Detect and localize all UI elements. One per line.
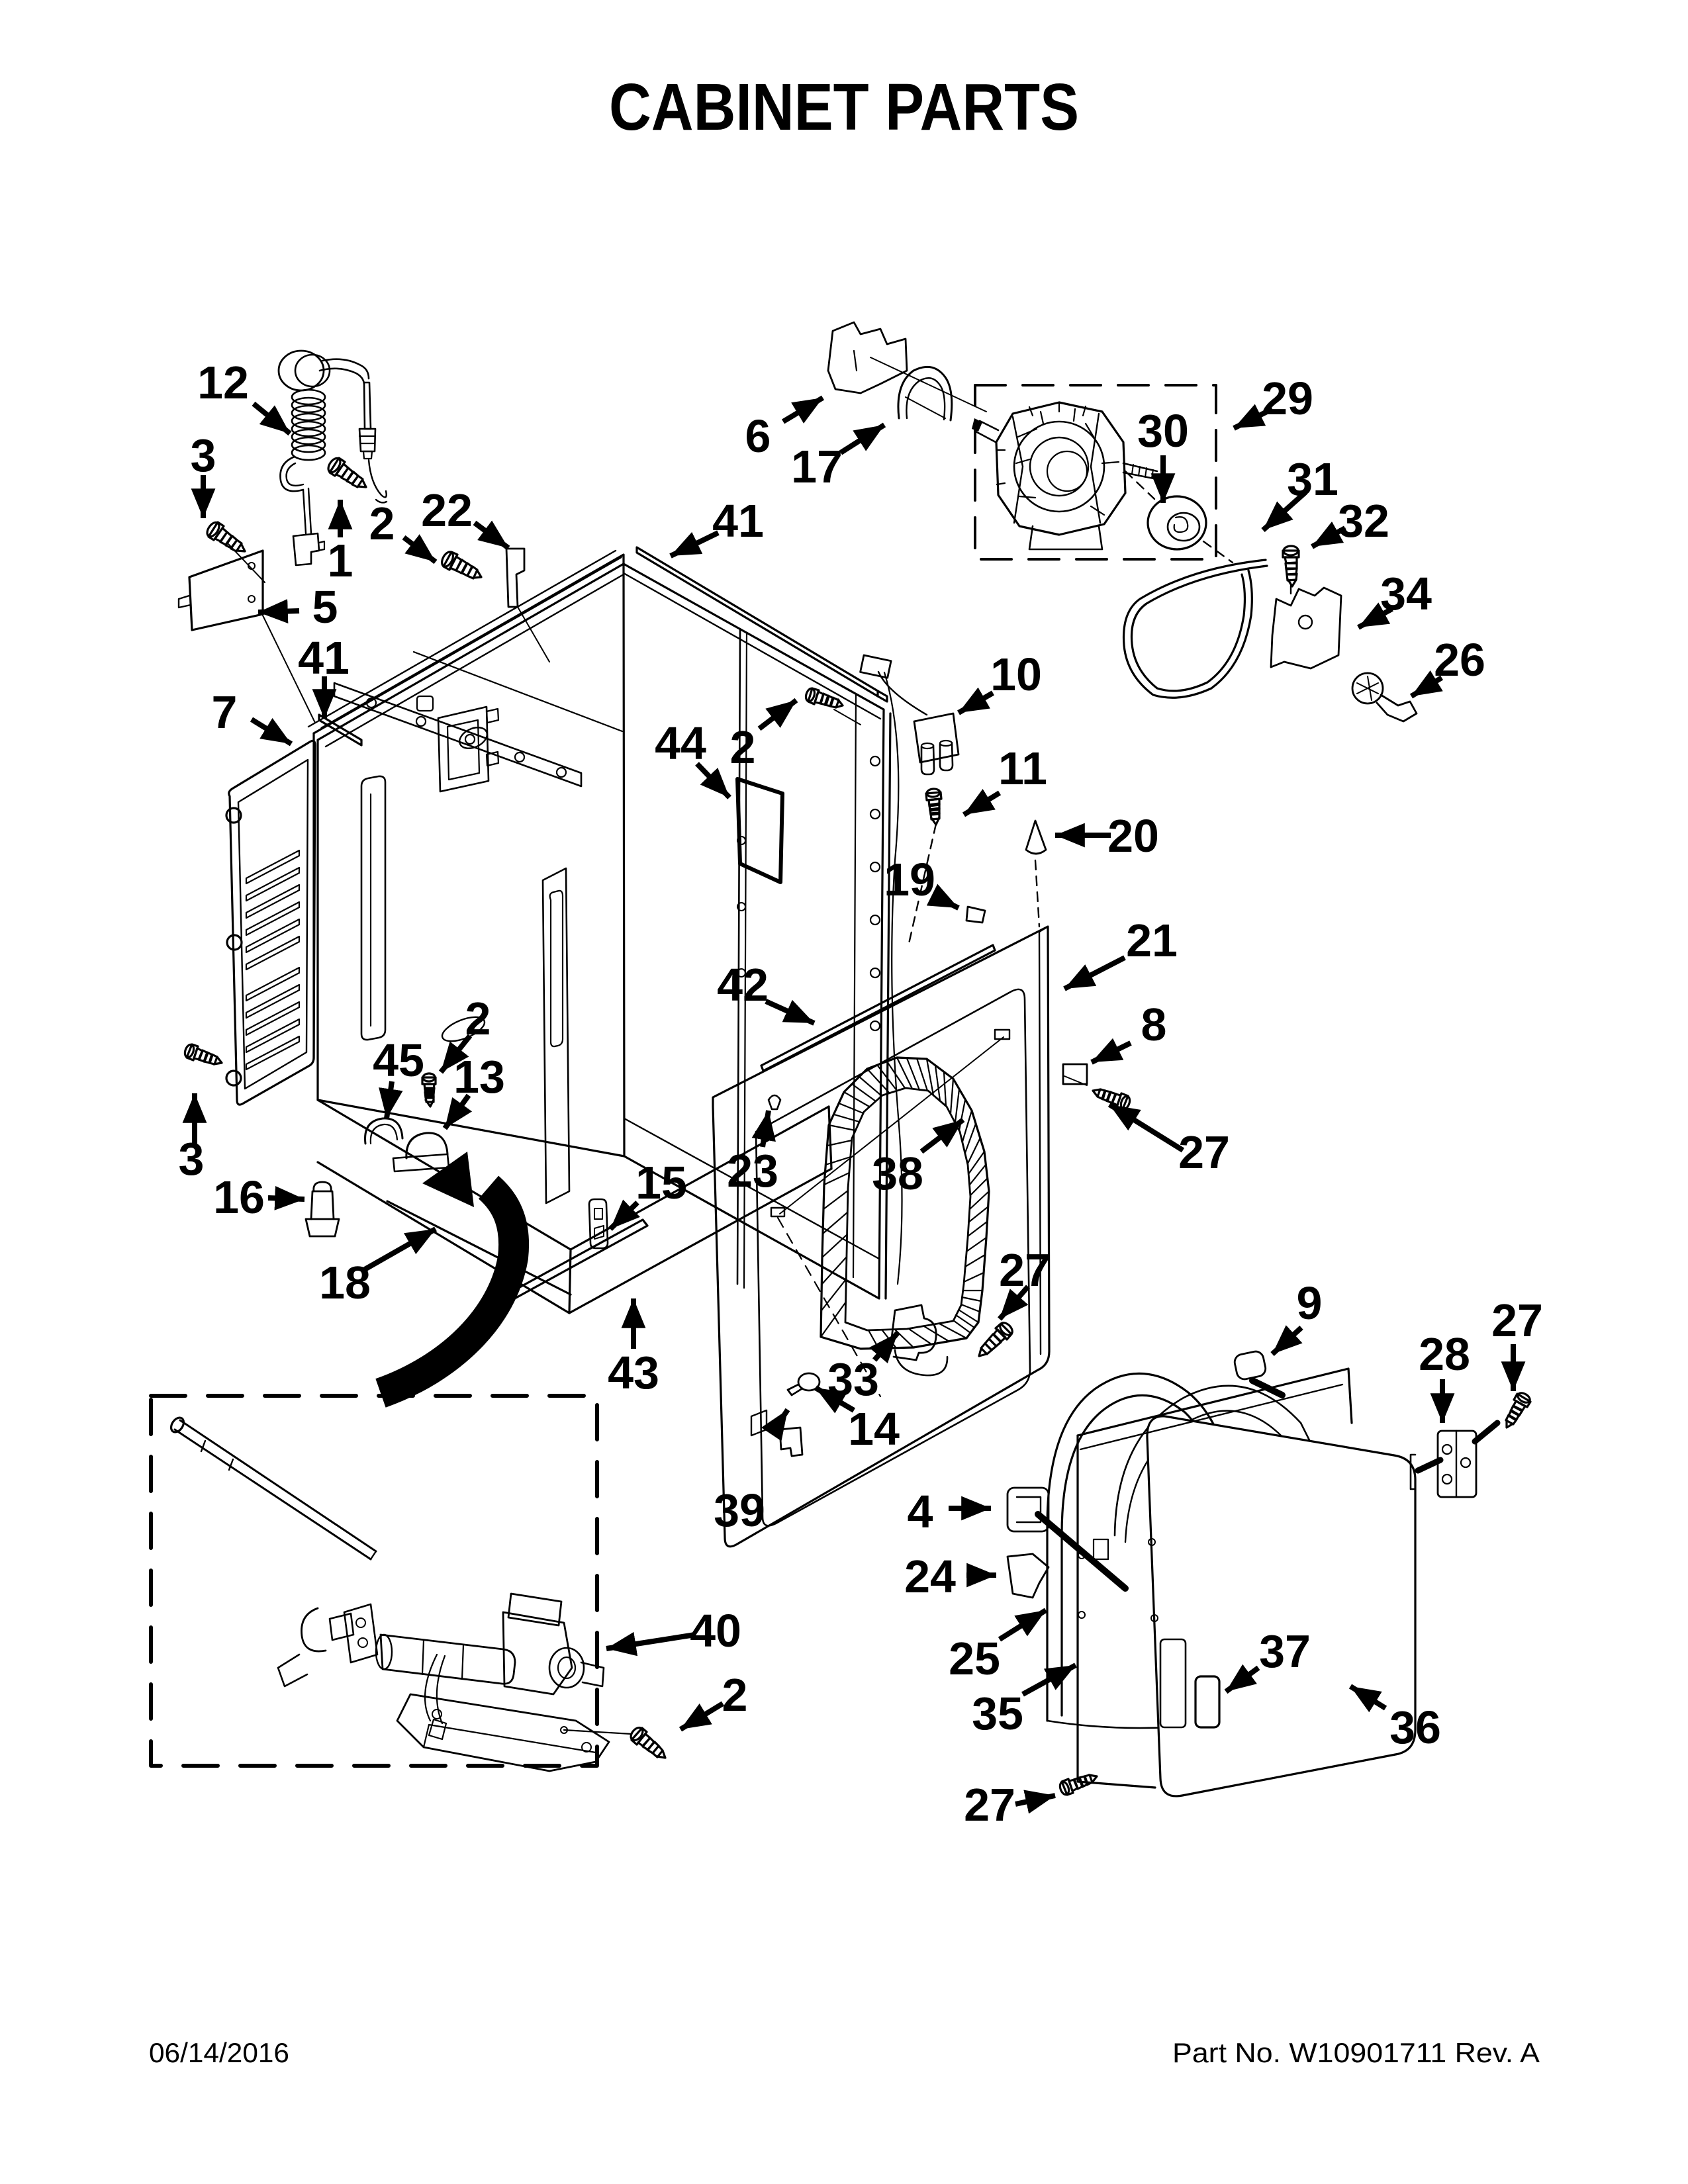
svg-text:2: 2	[722, 1669, 748, 1721]
svg-text:20: 20	[1107, 810, 1159, 862]
svg-text:3: 3	[191, 430, 216, 481]
svg-text:39: 39	[714, 1484, 765, 1536]
svg-text:3: 3	[179, 1133, 205, 1185]
svg-text:45: 45	[373, 1034, 424, 1086]
svg-text:16: 16	[213, 1171, 265, 1223]
svg-text:42: 42	[717, 959, 769, 1011]
svg-text:27: 27	[1491, 1295, 1543, 1346]
svg-text:30: 30	[1137, 405, 1189, 457]
svg-text:35: 35	[972, 1688, 1023, 1739]
svg-text:12: 12	[197, 357, 249, 408]
svg-text:28: 28	[1419, 1328, 1470, 1380]
svg-text:37: 37	[1259, 1625, 1311, 1677]
svg-text:21: 21	[1126, 915, 1178, 966]
svg-text:32: 32	[1338, 495, 1389, 547]
svg-text:22: 22	[421, 484, 473, 536]
svg-text:5: 5	[312, 581, 338, 633]
svg-text:11: 11	[998, 743, 1047, 794]
svg-text:19: 19	[884, 854, 935, 905]
svg-text:Part No. W10901711 Rev. A: Part No. W10901711 Rev. A	[1172, 2037, 1540, 2068]
svg-text:9: 9	[1297, 1277, 1323, 1329]
svg-text:13: 13	[453, 1051, 505, 1103]
svg-text:14: 14	[848, 1403, 900, 1455]
svg-text:2: 2	[730, 721, 756, 773]
svg-text:27: 27	[1178, 1126, 1230, 1178]
svg-text:25: 25	[949, 1633, 1000, 1684]
svg-text:23: 23	[727, 1145, 778, 1197]
svg-text:4: 4	[908, 1486, 933, 1537]
svg-text:1: 1	[328, 535, 353, 586]
svg-text:7: 7	[212, 686, 238, 738]
svg-text:29: 29	[1262, 373, 1313, 424]
svg-text:24: 24	[904, 1551, 956, 1602]
svg-text:6: 6	[745, 410, 771, 462]
svg-text:43: 43	[608, 1347, 659, 1398]
svg-text:06/14/2016: 06/14/2016	[149, 2037, 289, 2068]
svg-text:2: 2	[369, 498, 395, 549]
svg-text:38: 38	[872, 1148, 923, 1199]
svg-text:17: 17	[791, 441, 843, 492]
svg-text:10: 10	[990, 649, 1042, 700]
svg-text:41: 41	[298, 632, 350, 684]
svg-text:CABINET PARTS: CABINET PARTS	[609, 70, 1079, 144]
svg-text:31: 31	[1287, 453, 1338, 505]
svg-text:36: 36	[1389, 1702, 1441, 1753]
svg-text:18: 18	[319, 1257, 371, 1308]
svg-text:41: 41	[712, 495, 764, 547]
svg-text:8: 8	[1141, 999, 1167, 1050]
svg-text:27: 27	[964, 1779, 1015, 1831]
svg-text:40: 40	[690, 1605, 741, 1657]
svg-text:44: 44	[655, 717, 706, 769]
svg-text:15: 15	[635, 1157, 687, 1208]
